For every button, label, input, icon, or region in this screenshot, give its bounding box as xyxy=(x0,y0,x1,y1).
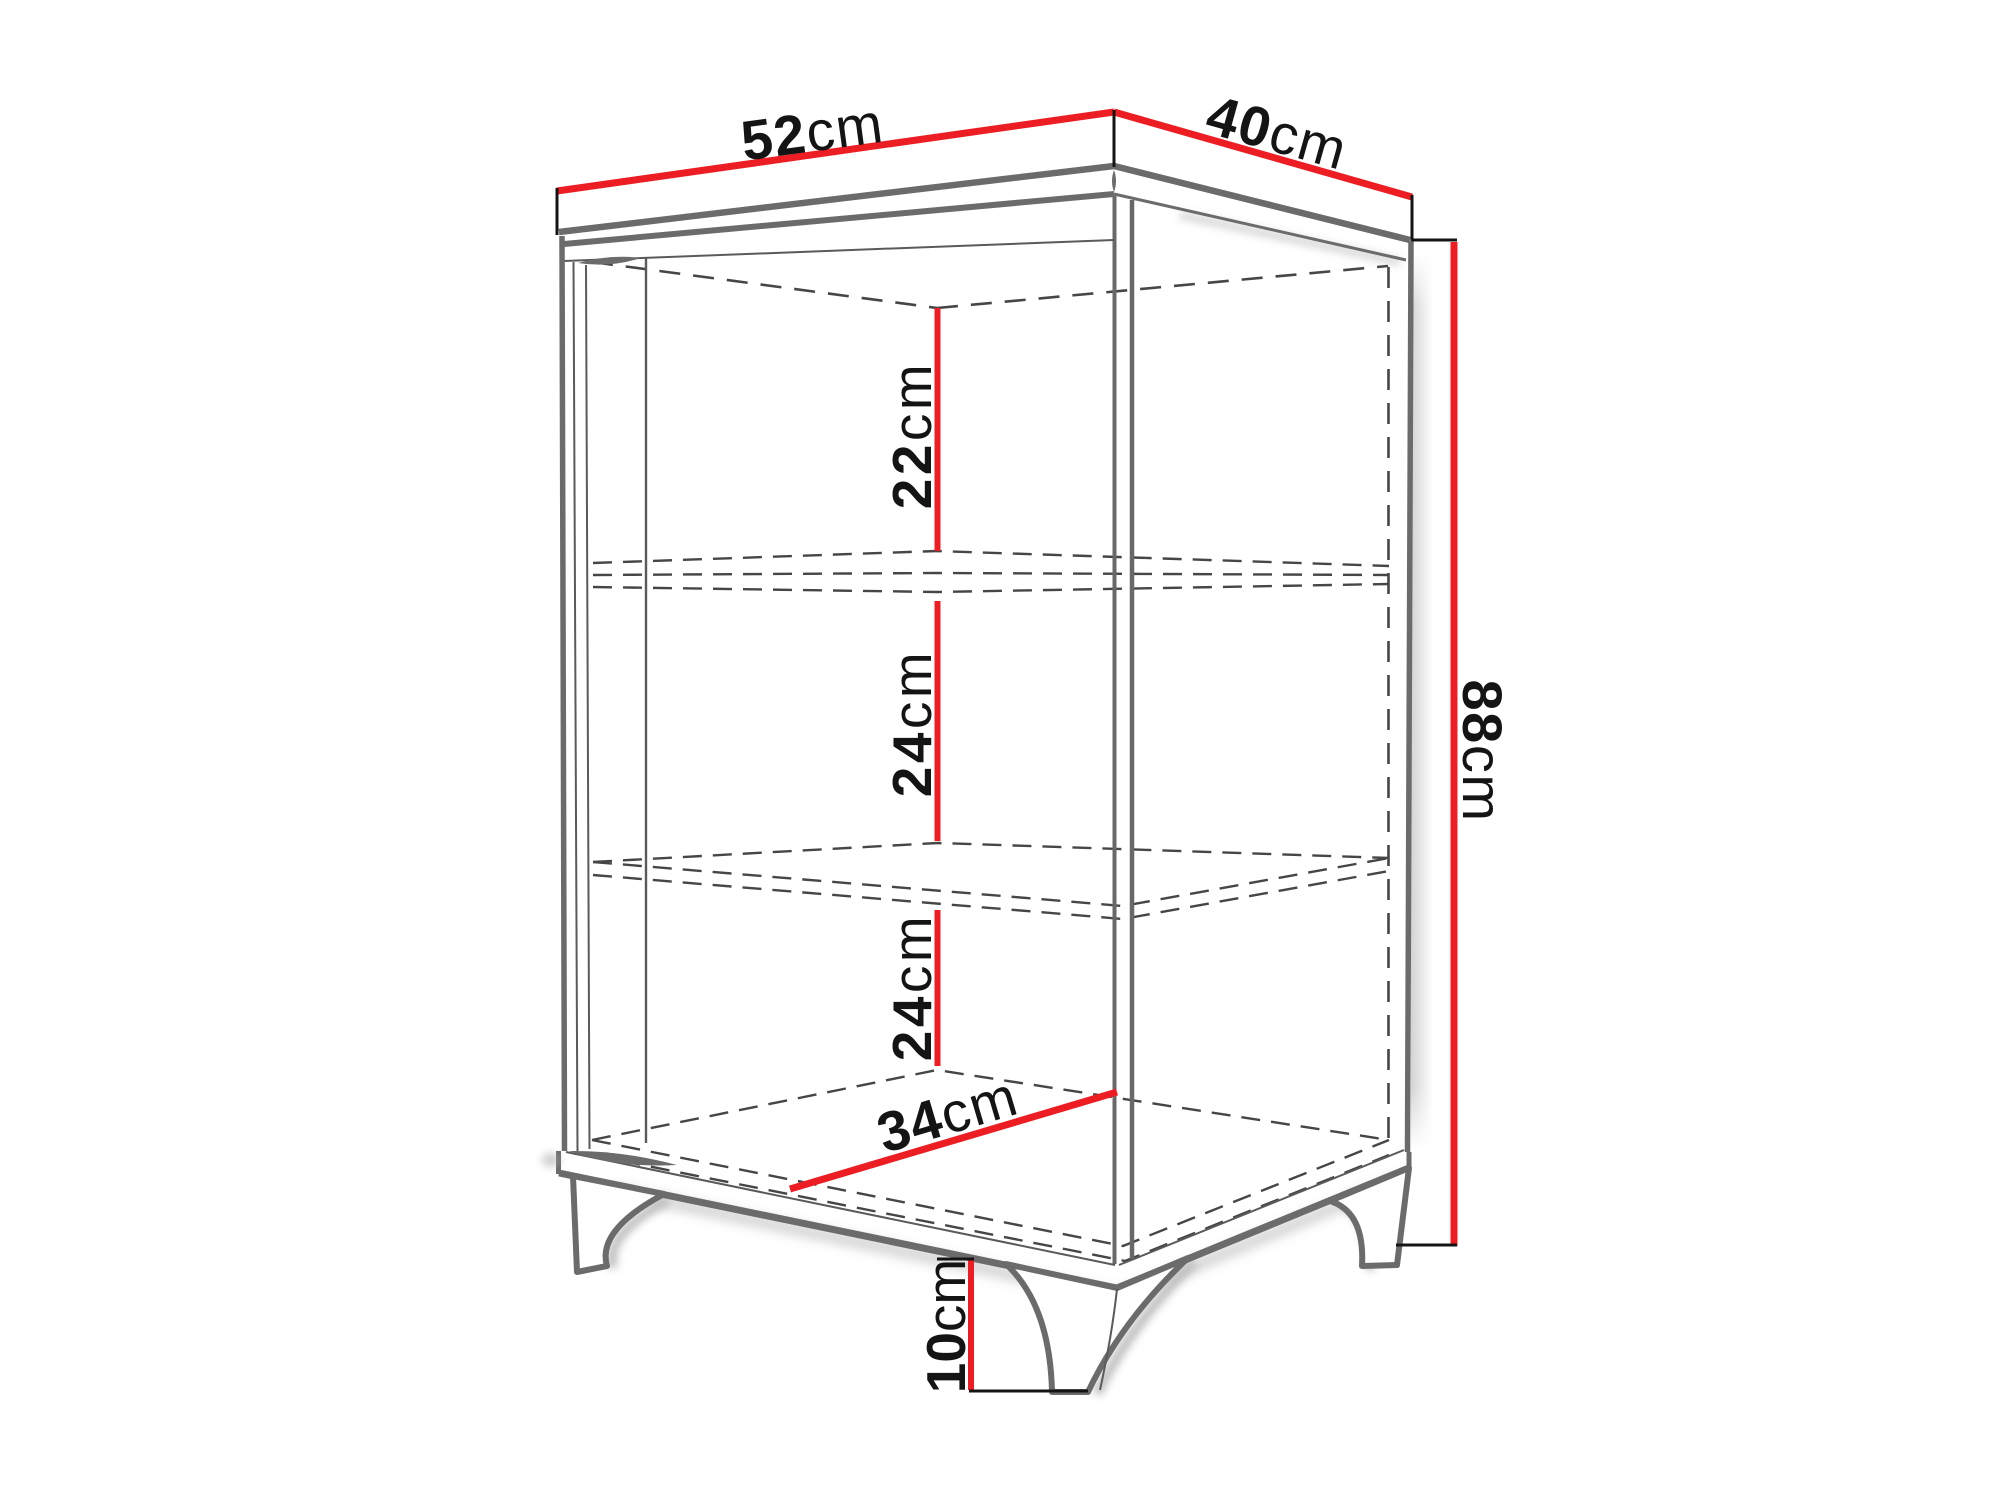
svg-text:24cm: 24cm xyxy=(881,913,943,1062)
svg-text:10cm: 10cm xyxy=(915,1259,977,1394)
svg-text:22cm: 22cm xyxy=(881,361,943,510)
svg-text:88cm: 88cm xyxy=(1451,680,1514,823)
svg-text:24cm: 24cm xyxy=(881,649,943,798)
